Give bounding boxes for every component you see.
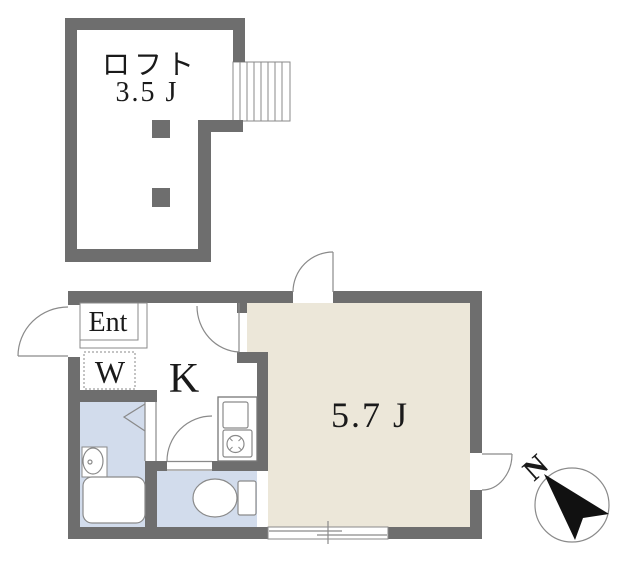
toilet-door bbox=[167, 416, 212, 461]
loft-pillar-bottom bbox=[152, 188, 170, 207]
kitchen-sink bbox=[223, 402, 248, 428]
loft-size-label: 3.5 J bbox=[116, 77, 179, 108]
wall-bathroom-top bbox=[68, 390, 157, 402]
kitchen-counter bbox=[218, 397, 257, 461]
top-door-opening bbox=[293, 291, 333, 303]
floor-plan-page: ロフト 3.5 J Ent bbox=[0, 0, 640, 572]
entrance-step: Ent bbox=[80, 303, 147, 348]
entrance-door bbox=[18, 307, 68, 356]
toilet-tank bbox=[238, 481, 256, 515]
toilet-doorway bbox=[167, 461, 212, 471]
main-room-size-label: 5.7 J bbox=[331, 395, 409, 435]
kitchen-room-door bbox=[197, 303, 239, 352]
wall-kitchen-step-h bbox=[237, 352, 268, 363]
washer-label: W bbox=[95, 354, 126, 390]
floor-plan-svg: ロフト 3.5 J Ent bbox=[0, 0, 640, 572]
bathtub bbox=[83, 477, 145, 523]
entrance-label: Ent bbox=[89, 307, 128, 338]
wall-kitchen-step-v bbox=[257, 363, 268, 461]
wall-bath-toilet bbox=[145, 461, 157, 527]
washer-area: W bbox=[84, 352, 135, 390]
loft-section: ロフト 3.5 J bbox=[65, 18, 290, 262]
toilet-bowl bbox=[193, 479, 237, 517]
compass: N bbox=[517, 448, 609, 542]
loft-stairs bbox=[233, 62, 290, 121]
fold-door-strip bbox=[145, 402, 156, 461]
bath-sink bbox=[83, 448, 103, 474]
toilet-fixture bbox=[193, 479, 256, 517]
main-floor-section: Ent W K 5.7 J bbox=[18, 252, 512, 544]
balcony-door bbox=[482, 454, 512, 490]
kitchen-label: K bbox=[169, 356, 199, 402]
entrance-opening bbox=[68, 305, 80, 357]
right-door-opening bbox=[470, 453, 482, 490]
wall-toilet-top-right bbox=[212, 461, 268, 471]
loft-access-door bbox=[293, 252, 333, 292]
loft-pillar-top bbox=[152, 120, 170, 138]
